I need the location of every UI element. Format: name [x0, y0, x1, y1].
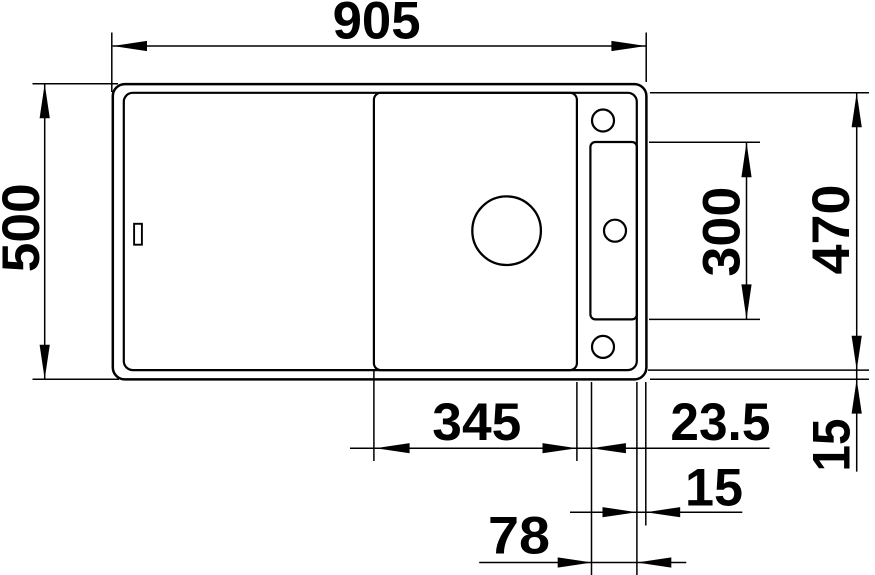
- svg-text:15: 15: [803, 419, 862, 472]
- svg-text:78: 78: [488, 506, 550, 565]
- svg-text:905: 905: [333, 0, 421, 50]
- svg-text:300: 300: [693, 187, 752, 277]
- svg-text:470: 470: [802, 185, 861, 275]
- svg-text:345: 345: [432, 393, 521, 452]
- svg-text:15: 15: [685, 458, 743, 517]
- svg-text:500: 500: [0, 183, 51, 272]
- svg-text:23.5: 23.5: [670, 393, 770, 452]
